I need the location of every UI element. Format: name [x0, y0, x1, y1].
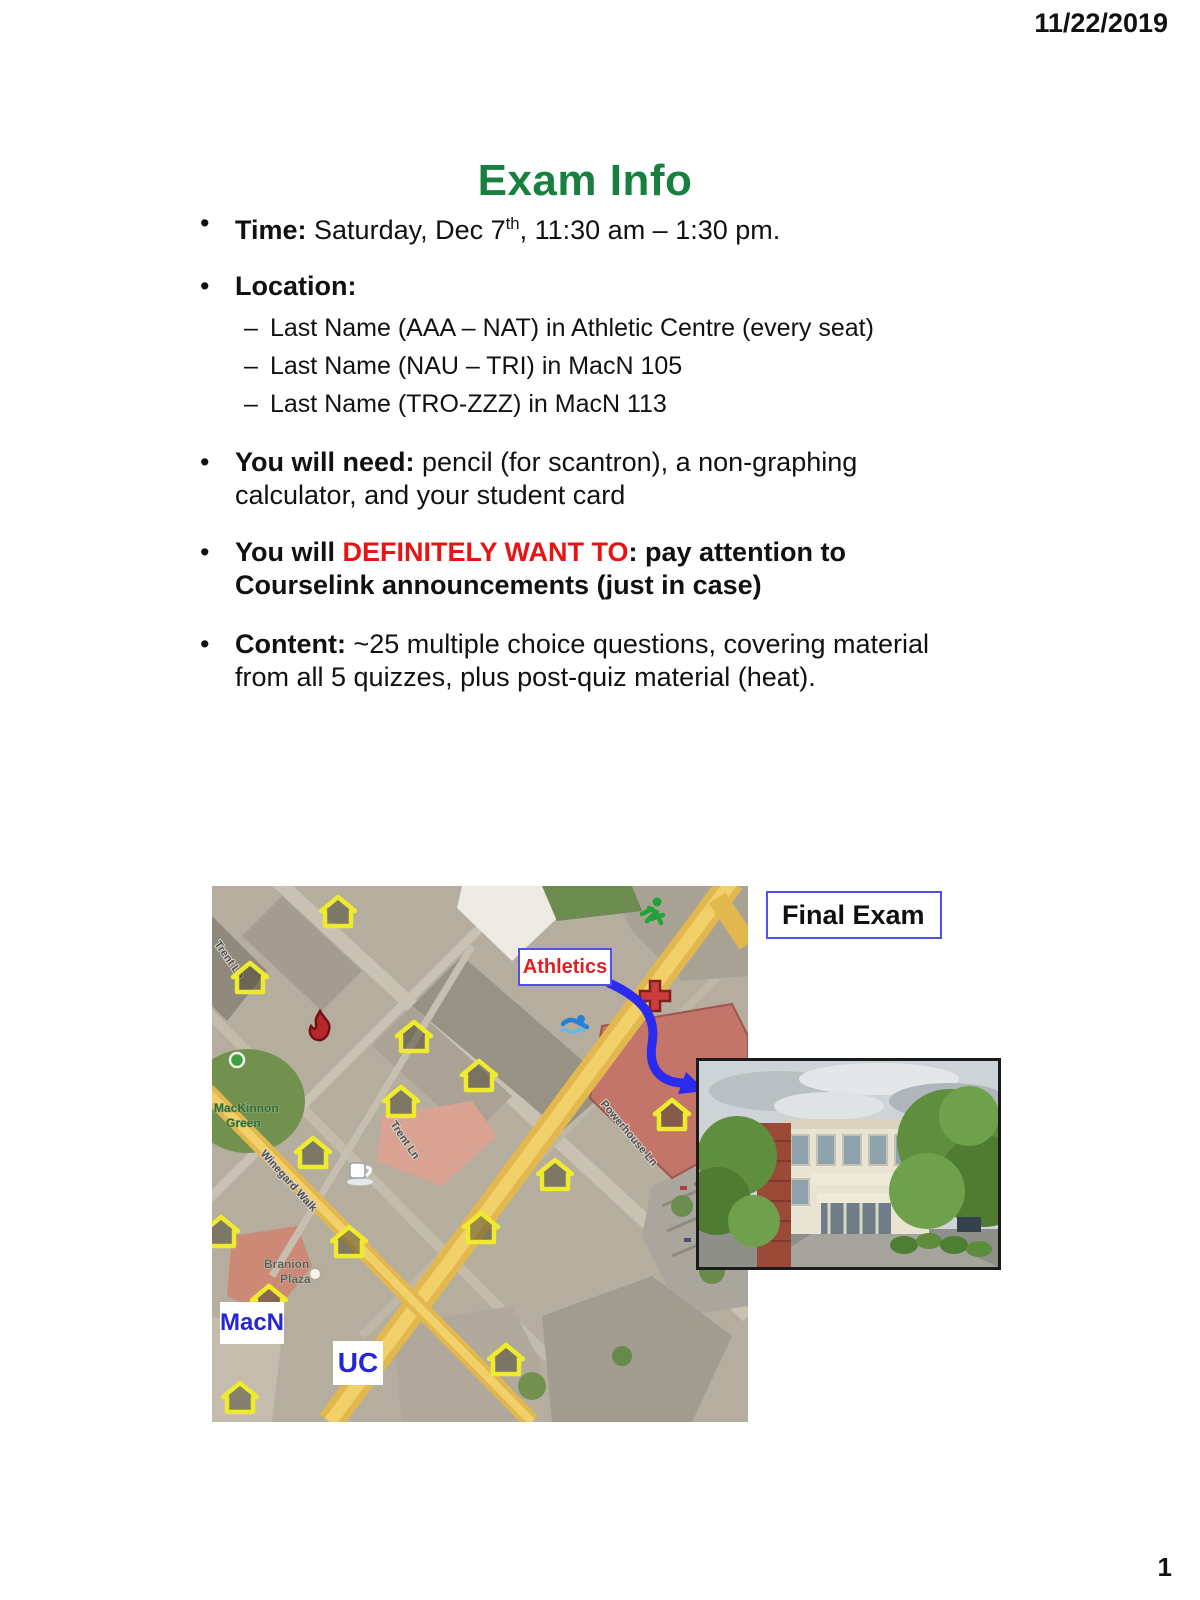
page-title: Exam Info: [170, 156, 1000, 206]
sign-band: [811, 1173, 903, 1185]
green-patch: [518, 1372, 546, 1400]
content-label: Content:: [235, 629, 346, 659]
green-patch: [671, 1195, 693, 1217]
area-label-mackinnon: MacKinnon: [214, 1101, 279, 1115]
location-item-text: Last Name (TRO-ZZZ) in MacN 113: [270, 389, 930, 419]
time-text1: Saturday, Dec 7: [307, 215, 506, 245]
bullet-dot: •: [200, 628, 235, 694]
cloud: [774, 1092, 884, 1120]
bullet-dot: •: [200, 270, 235, 303]
area-label-branion: Branion: [264, 1257, 309, 1271]
location-item-text: Last Name (AAA – NAT) in Athletic Centre…: [270, 313, 930, 343]
building-sign: [957, 1217, 981, 1232]
entrance-doors: [821, 1203, 891, 1234]
location-label: Location:: [235, 271, 357, 301]
area-label-branion-2: Plaza: [280, 1272, 311, 1286]
bullet-dot: •: [200, 536, 235, 602]
macn-label: MacN: [220, 1302, 284, 1344]
green-patch: [612, 1346, 632, 1366]
need-label: You will need:: [235, 447, 415, 477]
want-prefix: You will: [235, 537, 343, 567]
tree-icon: [230, 1053, 244, 1067]
bullet-dot: •: [200, 446, 235, 512]
area-label-mackinnon-2: Green: [226, 1116, 261, 1130]
want-colon: :: [629, 537, 638, 567]
location-item: – Last Name (AAA – NAT) in Athletic Cent…: [244, 313, 930, 343]
location-item: – Last Name (NAU – TRI) in MacN 105: [244, 351, 930, 381]
building-photo-graphic: [699, 1061, 998, 1267]
bullet-time-text: Time: Saturday, Dec 7th, 11:30 am – 1:30…: [235, 207, 941, 247]
time-superscript: th: [506, 214, 520, 233]
bullet-time: • Time: Saturday, Dec 7th, 11:30 am – 1:…: [200, 207, 941, 247]
page-number: 1: [1158, 1552, 1172, 1583]
uc-label: UC: [333, 1341, 383, 1385]
sub-bullet-dash: –: [244, 389, 270, 419]
building-photo: [696, 1058, 1001, 1270]
sub-bullet-dash: –: [244, 313, 270, 343]
car: [680, 1186, 687, 1190]
want-highlight: DEFINITELY WANT TO: [343, 537, 629, 567]
bullet-want: • You will DEFINITELY WANT TO: pay atten…: [200, 536, 941, 602]
plaza-dot: [309, 1268, 321, 1280]
athletics-label: Athletics: [518, 948, 612, 986]
location-item-text: Last Name (NAU – TRI) in MacN 105: [270, 351, 930, 381]
bullet-content: • Content: ~25 multiple choice questions…: [200, 628, 941, 694]
bullet-location: • Location:: [200, 270, 941, 303]
car: [684, 1238, 691, 1242]
time-label: Time:: [235, 215, 307, 245]
entrance-canopy: [817, 1193, 895, 1203]
final-exam-callout: Final Exam: [766, 891, 942, 939]
location-item: – Last Name (TRO-ZZZ) in MacN 113: [244, 389, 930, 419]
bullet-dot: •: [200, 207, 235, 247]
time-text2: , 11:30 am – 1:30 pm.: [520, 215, 781, 245]
bullet-need: • You will need: pencil (for scantron), …: [200, 446, 941, 512]
sub-bullet-dash: –: [244, 351, 270, 381]
map-graphic: Trent Ln Trent Ln Powerhouse Ln Winegard…: [212, 886, 748, 1422]
slide-date: 11/22/2019: [1034, 8, 1168, 39]
campus-map: Trent Ln Trent Ln Powerhouse Ln Winegard…: [212, 886, 748, 1422]
coffee-cup-icon: [347, 1163, 373, 1186]
